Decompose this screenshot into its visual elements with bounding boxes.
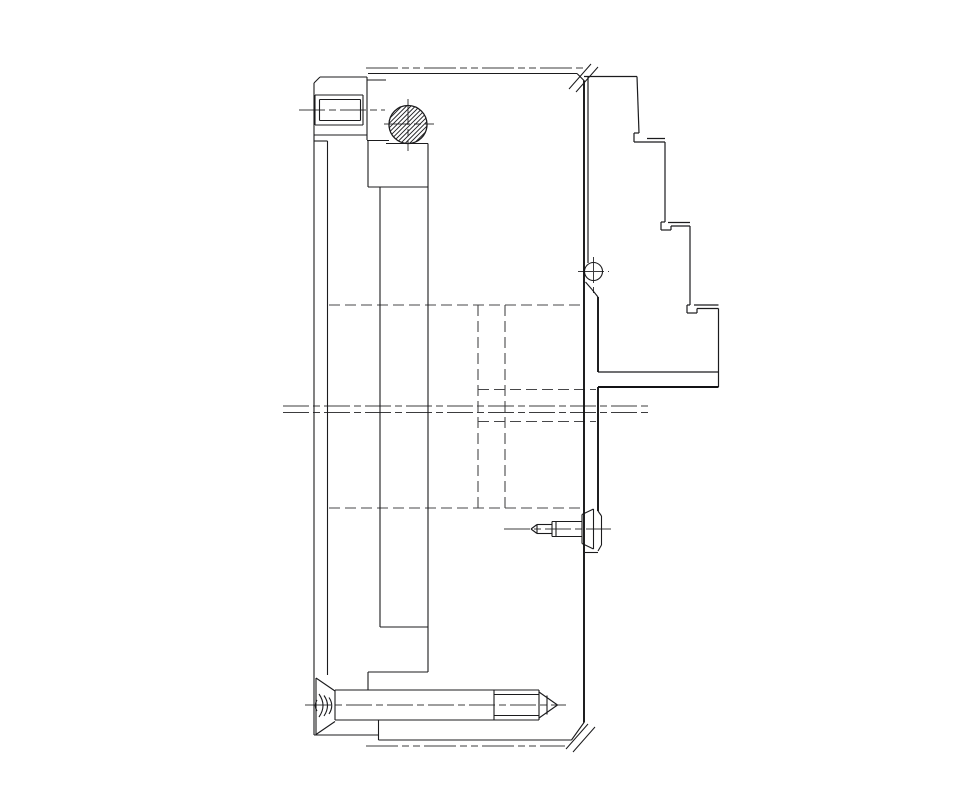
jaw-step-profile xyxy=(584,77,719,388)
center-lines xyxy=(283,99,652,705)
heavy-edges xyxy=(584,81,719,723)
break-marks xyxy=(566,64,598,752)
cad-drawing-page xyxy=(0,0,976,800)
bottom-countersunk-bolt xyxy=(315,678,557,735)
drawing-svg xyxy=(0,0,976,800)
phantom-chain-lines xyxy=(366,68,586,746)
body-outline-solid xyxy=(314,74,584,741)
